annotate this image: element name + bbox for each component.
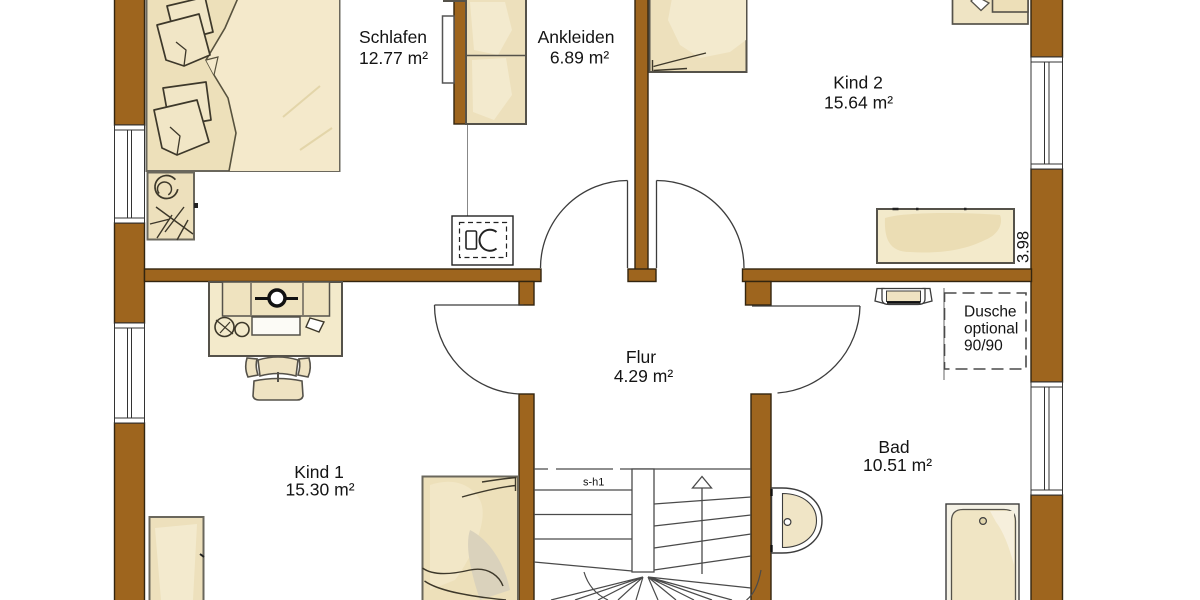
svg-text:s-h1: s-h1 [583, 477, 604, 489]
svg-text:10.51 m²: 10.51 m² [863, 455, 932, 475]
svg-text:Bad: Bad [878, 437, 909, 457]
svg-text:90/90: 90/90 [964, 338, 1003, 355]
svg-text:Flur: Flur [626, 347, 656, 367]
svg-text:15.30 m²: 15.30 m² [285, 480, 354, 500]
svg-text:12.77 m²: 12.77 m² [359, 48, 428, 68]
svg-text:Kind 2: Kind 2 [833, 73, 883, 93]
svg-text:Dusche: Dusche [964, 304, 1017, 321]
svg-text:6.89 m²: 6.89 m² [550, 48, 609, 68]
svg-text:3.98: 3.98 [1015, 231, 1033, 263]
svg-text:optional: optional [964, 321, 1018, 338]
svg-text:Schlafen: Schlafen [359, 27, 427, 47]
svg-text:15.64 m²: 15.64 m² [824, 93, 893, 113]
svg-text:4.29 m²: 4.29 m² [614, 366, 673, 386]
svg-text:Ankleiden: Ankleiden [538, 27, 615, 47]
